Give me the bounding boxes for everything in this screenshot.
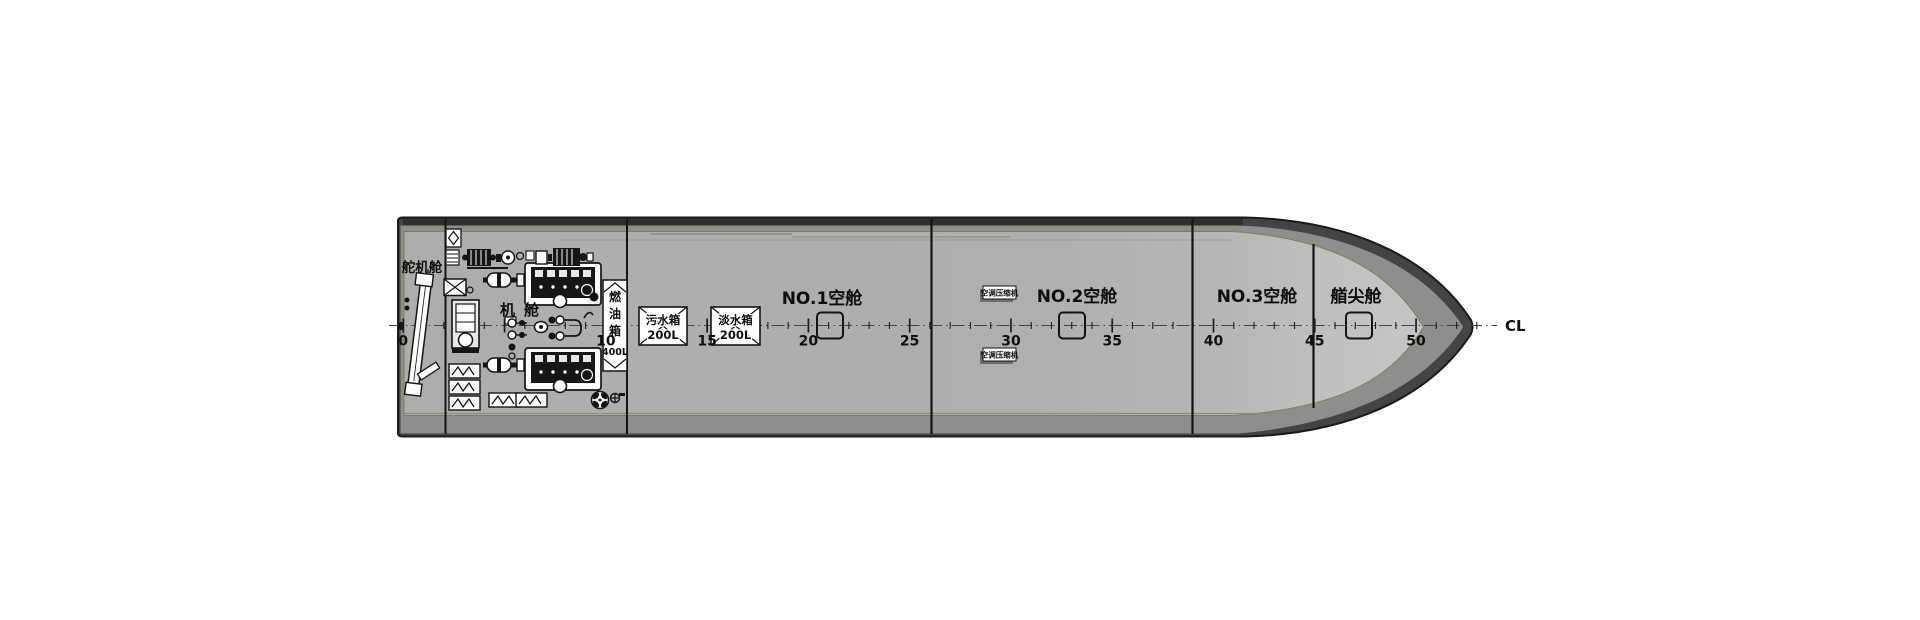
frame-number-0: 0: [398, 334, 408, 350]
frame-number-50: 50: [1406, 334, 1426, 350]
frame-number-30: 30: [1001, 334, 1021, 350]
ship-general-arrangement-page: 燃 油 箱 400L 污水箱 200L 淡水箱 200L 空调压缩机 空调压缩机…: [0, 0, 1920, 620]
label-void-2: NO.2空舱: [1037, 286, 1119, 307]
label-engine-room: 机舱: [500, 301, 548, 319]
rudder-stock: [398, 322, 404, 330]
fuel-tank: 燃 油 箱 400L: [602, 280, 628, 371]
fuel-tank-label-char: 油: [609, 306, 621, 321]
floor-plate: [449, 380, 480, 394]
tiller-base: [405, 382, 422, 396]
ac-compressor-aft-label: 空调压缩机: [981, 350, 1019, 360]
frame-number-35: 35: [1102, 334, 1121, 350]
hull-top-dark-band: [403, 219, 1243, 227]
label-fore-peak: 艏尖舱: [1331, 286, 1383, 307]
switchboard-cabinet: [452, 300, 479, 353]
label-steering-gear-room: 舵机舱: [402, 259, 443, 276]
fuel-transfer-pump: [535, 322, 548, 333]
frame-number-45: 45: [1305, 334, 1324, 350]
fresh-water-tank-capacity: 200L: [720, 328, 752, 342]
small-fitting: [526, 251, 534, 260]
label-void-3: NO.3空舱: [1217, 286, 1299, 307]
frame-number-40: 40: [1204, 334, 1224, 350]
frame-number-15: 15: [697, 334, 716, 350]
ventilation-fan: [592, 392, 609, 409]
frame-number-10: 10: [596, 334, 616, 350]
centerline-label: CL: [1505, 317, 1526, 335]
sewage-tank-name: 污水箱: [646, 313, 681, 327]
ac-compressor-fwd-label: 空调压缩机: [981, 288, 1019, 298]
floor-plate: [449, 364, 480, 378]
fresh-water-tank: 淡水箱 200L: [711, 307, 760, 345]
fuel-tank-label-char: 燃: [609, 289, 622, 304]
fresh-water-tank-name: 淡水箱: [718, 313, 753, 327]
label-void-1: NO.1空舱: [782, 288, 864, 309]
ac-compressor-aft-unit: 空调压缩机: [980, 348, 1019, 364]
sewage-tank-capacity: 200L: [647, 328, 679, 342]
ship-general-arrangement-drawing: 燃 油 箱 400L 污水箱 200L 淡水箱 200L 空调压缩机 空调压缩机…: [0, 0, 1920, 620]
frame-number-20: 20: [799, 334, 819, 350]
floor-plate: [516, 393, 547, 407]
frame-number-25: 25: [900, 334, 919, 350]
floor-plate: [449, 396, 480, 410]
ac-compressor-fwd-unit: 空调压缩机: [980, 286, 1019, 302]
sewage-tank: 污水箱 200L: [639, 307, 687, 345]
